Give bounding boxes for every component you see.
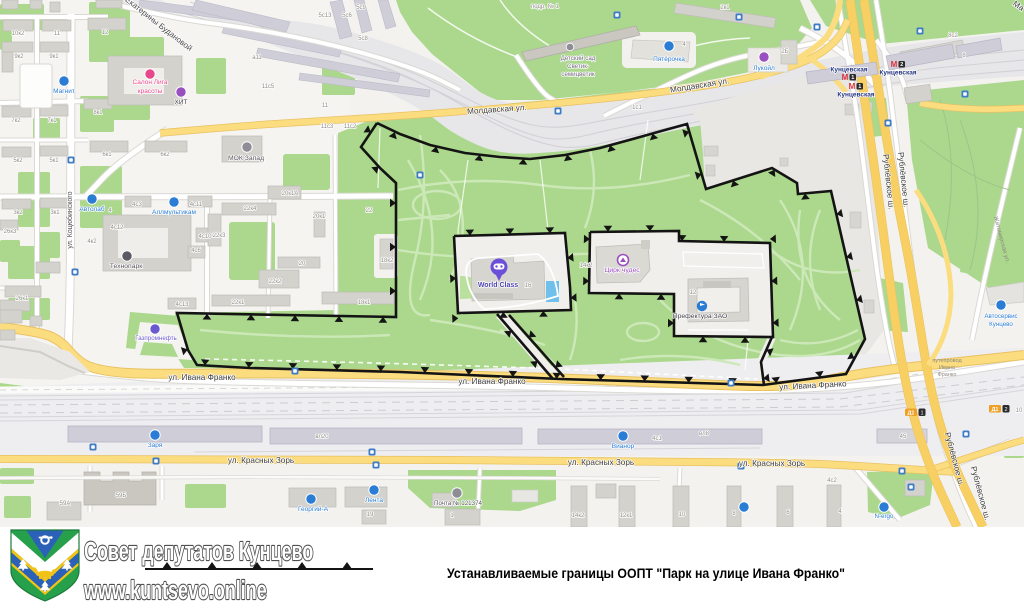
svg-text:Вианор: Вианор [612, 443, 635, 450]
svg-text:5к2: 5к2 [13, 158, 23, 164]
svg-text:Лукойл: Лукойл [753, 64, 775, 72]
svg-text:Совет депутатов Кунцево: Совет депутатов Кунцево [84, 537, 313, 566]
svg-text:5с6: 5с6 [342, 13, 352, 19]
svg-text:www.kuntsevo.online: www.kuntsevo.online [83, 576, 266, 605]
svg-text:18к1: 18к1 [358, 300, 371, 306]
svg-text:а11: а11 [252, 55, 262, 61]
svg-text:4с12: 4с12 [110, 225, 124, 231]
svg-text:Аллмультикам: Аллмультикам [152, 209, 196, 216]
svg-text:Салон Лига: Салон Лига [133, 79, 168, 86]
svg-text:5к1: 5к1 [49, 158, 59, 164]
svg-text:ул. Ивана Франко: ул. Ивана Франко [458, 377, 526, 386]
svg-text:2к1: 2к1 [720, 5, 730, 11]
svg-text:Цирк чудес: Цирк чудес [604, 267, 640, 274]
svg-text:Георгий-А: Георгий-А [298, 505, 329, 513]
svg-text:Заря: Заря [148, 442, 163, 449]
svg-text:4к2: 4к2 [87, 239, 97, 245]
svg-text:4с1: 4с1 [652, 436, 662, 442]
svg-text:Газпромнефть: Газпромнефть [135, 335, 177, 342]
svg-text:Светик-: Светик- [567, 63, 589, 70]
svg-text:МОК Запад: МОК Запад [228, 155, 264, 162]
svg-text:Кунцевская: Кунцевская [879, 70, 916, 77]
svg-text:М: М [891, 60, 898, 69]
svg-text:11с3: 11с3 [321, 124, 334, 130]
svg-text:2: 2 [1004, 407, 1007, 413]
svg-text:20к1А: 20к1А [282, 191, 299, 197]
svg-text:Франко: Франко [938, 372, 957, 378]
svg-text:путепровод: путепровод [932, 358, 962, 364]
svg-text:ул. Ивана Франко: ул. Ивана Франко [168, 373, 236, 382]
svg-text:59Б: 59Б [116, 493, 127, 499]
svg-text:22к1: 22к1 [232, 300, 245, 306]
svg-text:подр. № 1: подр. № 1 [531, 3, 560, 10]
svg-text:Кунцево: Кунцево [989, 321, 1013, 328]
svg-text:5с8: 5с8 [358, 36, 368, 42]
svg-text:18к2: 18к2 [381, 258, 394, 264]
svg-text:Ивана: Ивана [939, 365, 956, 371]
svg-text:ул. Красных Зорь: ул. Красных Зорь [568, 458, 634, 467]
svg-text:World Class: World Class [478, 282, 518, 289]
svg-text:11с2: 11с2 [344, 124, 357, 130]
svg-text:10: 10 [1016, 408, 1023, 414]
svg-text:16: 16 [525, 283, 532, 289]
svg-text:11с5: 11с5 [262, 84, 275, 90]
svg-text:20: 20 [299, 261, 306, 267]
svg-text:1: 1 [920, 411, 923, 417]
svg-text:Почта № 121374: Почта № 121374 [434, 500, 482, 507]
svg-text:14к2: 14к2 [580, 263, 593, 269]
svg-text:ул. Коцюбинского: ул. Коцюбинского [66, 191, 74, 248]
svg-text:Лента: Лента [365, 497, 383, 504]
svg-text:20к1: 20к1 [313, 214, 326, 220]
svg-text:2: 2 [900, 62, 903, 68]
svg-text:Технопарк: Технопарк [110, 263, 143, 270]
svg-text:вл20: вл20 [315, 434, 329, 440]
svg-text:Детский сад: Детский сад [561, 55, 596, 62]
svg-text:5с9: 5с9 [356, 5, 366, 11]
svg-text:11: 11 [54, 31, 61, 37]
svg-text:22к2: 22к2 [269, 279, 282, 285]
svg-text:14к2: 14к2 [572, 513, 585, 519]
svg-text:Кунцевская: Кунцевская [830, 67, 867, 74]
svg-text:Автолаб: Автолаб [79, 205, 104, 213]
svg-text:19: 19 [367, 512, 374, 518]
svg-text:2Б: 2Б [781, 49, 788, 55]
svg-text:4с11: 4с11 [190, 202, 203, 208]
svg-text:45: 45 [900, 434, 907, 440]
svg-text:Кунцевская: Кунцевская [837, 92, 874, 99]
svg-text:8к1: 8к1 [93, 110, 103, 116]
svg-text:3к1: 3к1 [50, 210, 60, 216]
svg-text:Пятёрочка: Пятёрочка [653, 56, 685, 63]
svg-text:26к3: 26к3 [4, 229, 17, 235]
svg-text:вл8: вл8 [699, 431, 710, 437]
svg-text:4с6: 4с6 [191, 248, 201, 254]
svg-text:красоты: красоты [138, 88, 163, 95]
svg-text:Д1: Д1 [908, 411, 915, 417]
svg-text:Д1: Д1 [992, 407, 999, 413]
svg-text:ул. Красных Зорь: ул. Красных Зорь [739, 459, 805, 468]
svg-text:22: 22 [366, 208, 373, 214]
svg-text:7к2: 7к2 [11, 118, 21, 124]
svg-text:9к1: 9к1 [49, 54, 59, 60]
svg-text:10: 10 [679, 512, 686, 518]
svg-text:10к2: 10к2 [12, 31, 25, 37]
svg-text:Автосервис: Автосервис [984, 313, 1017, 320]
svg-text:Устанавливаемые границы ООПТ ": Устанавливаемые границы ООПТ "Парк на ул… [447, 566, 845, 581]
svg-text:22к4: 22к4 [244, 206, 257, 212]
svg-text:12: 12 [102, 30, 109, 36]
svg-text:4с2: 4с2 [827, 478, 837, 484]
svg-text:7к1: 7к1 [47, 118, 57, 124]
svg-text:9к2: 9к2 [14, 54, 24, 60]
svg-text:12к1: 12к1 [620, 513, 633, 519]
svg-text:1с1: 1с1 [632, 105, 642, 111]
svg-text:1: 1 [858, 84, 861, 90]
svg-text:ул. Красных Зорь: ул. Красных Зорь [228, 456, 294, 465]
svg-text:4с13: 4с13 [175, 302, 189, 308]
svg-text:26к1: 26к1 [16, 296, 29, 302]
svg-text:59А: 59А [60, 501, 71, 507]
svg-text:М: М [849, 82, 856, 91]
svg-text:М: М [842, 73, 849, 82]
svg-text:22к3: 22к3 [213, 233, 226, 239]
svg-text:N-ergo: N-ergo [875, 513, 894, 520]
svg-text:3к2: 3к2 [13, 210, 23, 216]
svg-text:6к1: 6к1 [102, 152, 112, 158]
svg-text:5с13: 5с13 [318, 13, 332, 19]
svg-text:семицветик: семицветик [561, 71, 595, 78]
svg-text:12: 12 [690, 290, 697, 296]
svg-text:4с10: 4с10 [198, 234, 212, 240]
svg-text:6к2: 6к2 [160, 152, 170, 158]
svg-text:Магнит: Магнит [53, 88, 75, 95]
svg-text:ХИТ: ХИТ [175, 99, 188, 106]
svg-text:11: 11 [322, 103, 329, 109]
svg-text:1: 1 [851, 75, 854, 81]
svg-text:4с3: 4с3 [132, 202, 142, 208]
svg-text:8с2: 8с2 [948, 33, 958, 39]
svg-text:Префектура ЗАО: Префектура ЗАО [673, 313, 728, 320]
